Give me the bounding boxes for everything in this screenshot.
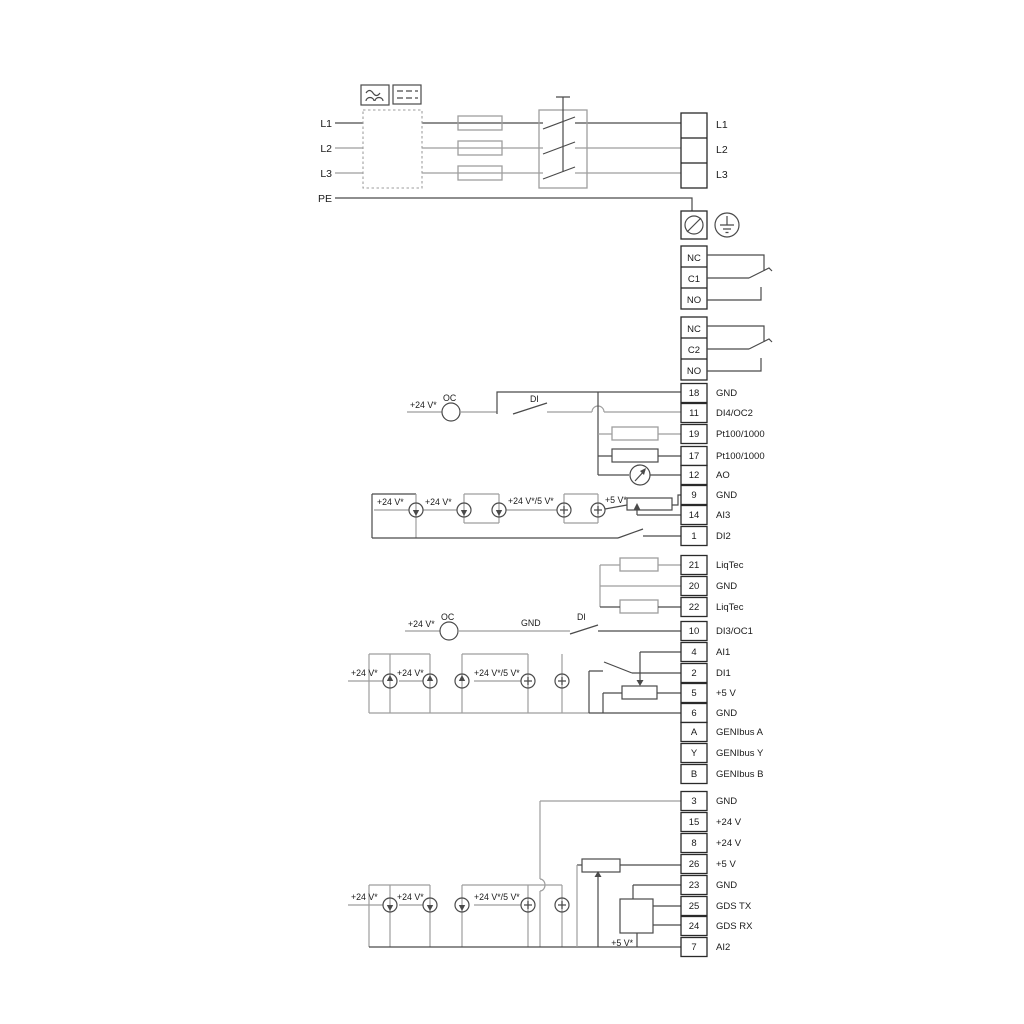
terminal-number: 21 — [689, 560, 700, 571]
terminal-number: 11 — [689, 408, 699, 419]
terminal-number: 23 — [689, 880, 700, 891]
terminal-label: GND — [716, 581, 737, 592]
filter-box — [363, 110, 422, 188]
terminal-label: DI3/OC1 — [716, 626, 753, 637]
terminal-number: 10 — [689, 626, 700, 637]
terminal-number: 4 — [691, 647, 696, 658]
di-switch-icon — [513, 403, 547, 414]
plus24-label: +24 V* — [351, 668, 378, 678]
terminal-block-power: L1 L2 L3 — [681, 113, 728, 188]
plus24-label: +24 V* — [425, 497, 452, 507]
earth-icon — [715, 213, 739, 237]
contactor-icon — [539, 97, 587, 188]
plus24or5-label: +24 V*/5 V* — [508, 496, 554, 506]
terminal-label: +5 V — [716, 688, 736, 699]
phase-label-l2: L2 — [320, 143, 332, 155]
terminal-number: B — [691, 769, 697, 780]
terminal-label: GDS TX — [716, 901, 752, 912]
terminal-number: 12 — [689, 470, 700, 481]
terminal-number: 2 — [691, 668, 696, 679]
oc-source-icon — [442, 403, 460, 421]
di1-switch-icon — [604, 662, 632, 673]
terminal-label: GENIbus A — [716, 727, 764, 738]
resistor-icon-liqtec-b — [620, 600, 658, 613]
terminal-number: 5 — [691, 688, 696, 699]
terminal-number: 20 — [689, 581, 700, 592]
terminal-label: DI4/OC2 — [716, 408, 753, 419]
terminal-label: Pt100/1000 — [716, 429, 765, 440]
phase-label-pe: PE — [318, 193, 332, 205]
terminal-number: 24 — [689, 921, 700, 932]
liqtec-wiring — [600, 558, 681, 613]
ai3-wiring: +24 V* +24 V* +24 V*/5 V* +5 V* — [372, 494, 681, 538]
relay-terminal: NC — [687, 324, 701, 335]
plus24or5-label: +24 V*/5 V* — [474, 892, 520, 902]
resistor-icon-liqtec-a — [620, 558, 658, 571]
terminal-label: +24 V — [716, 817, 742, 828]
plus24-label: +24 V* — [410, 400, 437, 410]
gds-sensor-box — [620, 899, 653, 933]
terminal-label: AI1 — [716, 647, 730, 658]
terminal-label: GND — [716, 388, 737, 399]
potentiometer-icon — [622, 686, 657, 699]
io1-wiring: +24 V* OC DI — [407, 392, 681, 485]
terminal-number: 26 — [689, 859, 700, 870]
terminal-label: GND — [716, 880, 737, 891]
terminal-label: DI1 — [716, 668, 731, 679]
terminal-block-io1: 18GND 11DI4/OC2 19Pt100/1000 17Pt100/100… — [681, 384, 765, 546]
potentiometer-icon — [627, 498, 672, 510]
plus24or5-label: +24 V*/5 V* — [474, 668, 520, 678]
terminal-label: AO — [716, 470, 730, 481]
terminal-label: +24 V — [716, 838, 742, 849]
relay1-block: NC C1 NO — [681, 246, 772, 309]
terminal-number: 6 — [691, 708, 696, 719]
terminal-label: GENIbus B — [716, 769, 764, 780]
plus24-label: +24 V* — [397, 892, 424, 902]
terminal-number: 15 — [689, 817, 700, 828]
terminal-label: +5 V — [716, 859, 736, 870]
phase-label-l1: L1 — [320, 118, 332, 130]
oc-source-icon — [440, 622, 458, 640]
ac-symbol-icon — [361, 85, 389, 105]
phase-label-l3: L3 — [320, 168, 332, 180]
terminal-number: 3 — [691, 796, 696, 807]
relay-terminal: C2 — [688, 345, 700, 356]
terminal-number: 17 — [689, 451, 700, 462]
terminal-block-io2: 21LiqTec 20GND 22LiqTec — [681, 556, 744, 617]
gnd-label: GND — [521, 618, 541, 628]
terminal-block-io3: 10DI3/OC1 4AI1 2DI1 5+5 V 6GND AGENIbus … — [681, 622, 764, 784]
dc-symbol-icon — [393, 85, 421, 104]
di2-switch-icon — [618, 529, 643, 538]
relay-terminal: NO — [687, 366, 701, 377]
terminal-block-io4: 3GND 15+24 V 8+24 V 26+5 V 23GND 25GDS T… — [681, 792, 753, 957]
di3-wiring: +24 V* OC GND DI — [405, 612, 681, 640]
terminal-number: 18 — [689, 388, 700, 399]
terminal-label: GND — [716, 490, 737, 501]
potentiometer-icon — [582, 859, 620, 872]
terminal-label: GND — [716, 796, 737, 807]
terminal-label: DI2 — [716, 531, 731, 542]
plus24-label: +24 V* — [408, 619, 435, 629]
terminal-number: A — [691, 727, 698, 738]
mains-input-section: L1 L2 L3 PE — [318, 85, 739, 239]
terminal-number: 1 — [691, 531, 696, 542]
ai2-wiring: +24 V* +24 V* +24 V*/5 V* +5 V* — [348, 801, 681, 948]
relay2-block: NC C2 NO — [681, 317, 772, 380]
plus24-label: +24 V* — [377, 497, 404, 507]
terminal-number: 8 — [691, 838, 696, 849]
meter-icon — [630, 465, 650, 485]
oc-label: OC — [441, 612, 455, 622]
terminal-number: 25 — [689, 901, 700, 912]
plus24-label: +24 V* — [351, 892, 378, 902]
terminal-number: 9 — [691, 490, 696, 501]
di-label: DI — [530, 394, 539, 404]
terminal-label: GND — [716, 708, 737, 719]
plus5-label: +5 V* — [605, 495, 627, 505]
di-switch-icon — [570, 625, 598, 634]
terminal-label: L2 — [716, 144, 728, 156]
oc-label: OC — [443, 393, 457, 403]
terminal-label: L3 — [716, 169, 728, 181]
di-label: DI — [577, 612, 586, 622]
terminal-number: 14 — [689, 510, 700, 521]
terminal-label: GDS RX — [716, 921, 753, 932]
terminal-number: Y — [691, 748, 698, 759]
plus24-label: +24 V* — [397, 668, 424, 678]
resistor-icon-pt100-a — [612, 427, 658, 440]
plus5-label: +5 V* — [611, 938, 633, 948]
relay-terminal: C1 — [688, 274, 700, 285]
terminal-label: LiqTec — [716, 602, 744, 613]
relay1-contact-icon — [707, 255, 772, 300]
terminal-label: AI2 — [716, 942, 730, 953]
terminal-number: 19 — [689, 429, 700, 440]
wiring-diagram: L1 L2 L3 PE — [0, 0, 1024, 1024]
terminal-number: 7 — [691, 942, 696, 953]
relay-terminal: NO — [687, 295, 701, 306]
relay-terminal: NC — [687, 253, 701, 264]
terminal-number: 22 — [689, 602, 700, 613]
terminal-label: Pt100/1000 — [716, 451, 765, 462]
terminal-label: LiqTec — [716, 560, 744, 571]
ai1-wiring: +24 V* +24 V* +24 V*/5 V* — [348, 652, 681, 713]
terminal-label: L1 — [716, 119, 728, 131]
resistor-icon-pt100-b — [612, 449, 658, 462]
pe-terminal-icon — [681, 211, 707, 239]
terminal-label: GENIbus Y — [716, 748, 764, 759]
terminal-label: AI3 — [716, 510, 730, 521]
relay2-contact-icon — [707, 326, 772, 371]
